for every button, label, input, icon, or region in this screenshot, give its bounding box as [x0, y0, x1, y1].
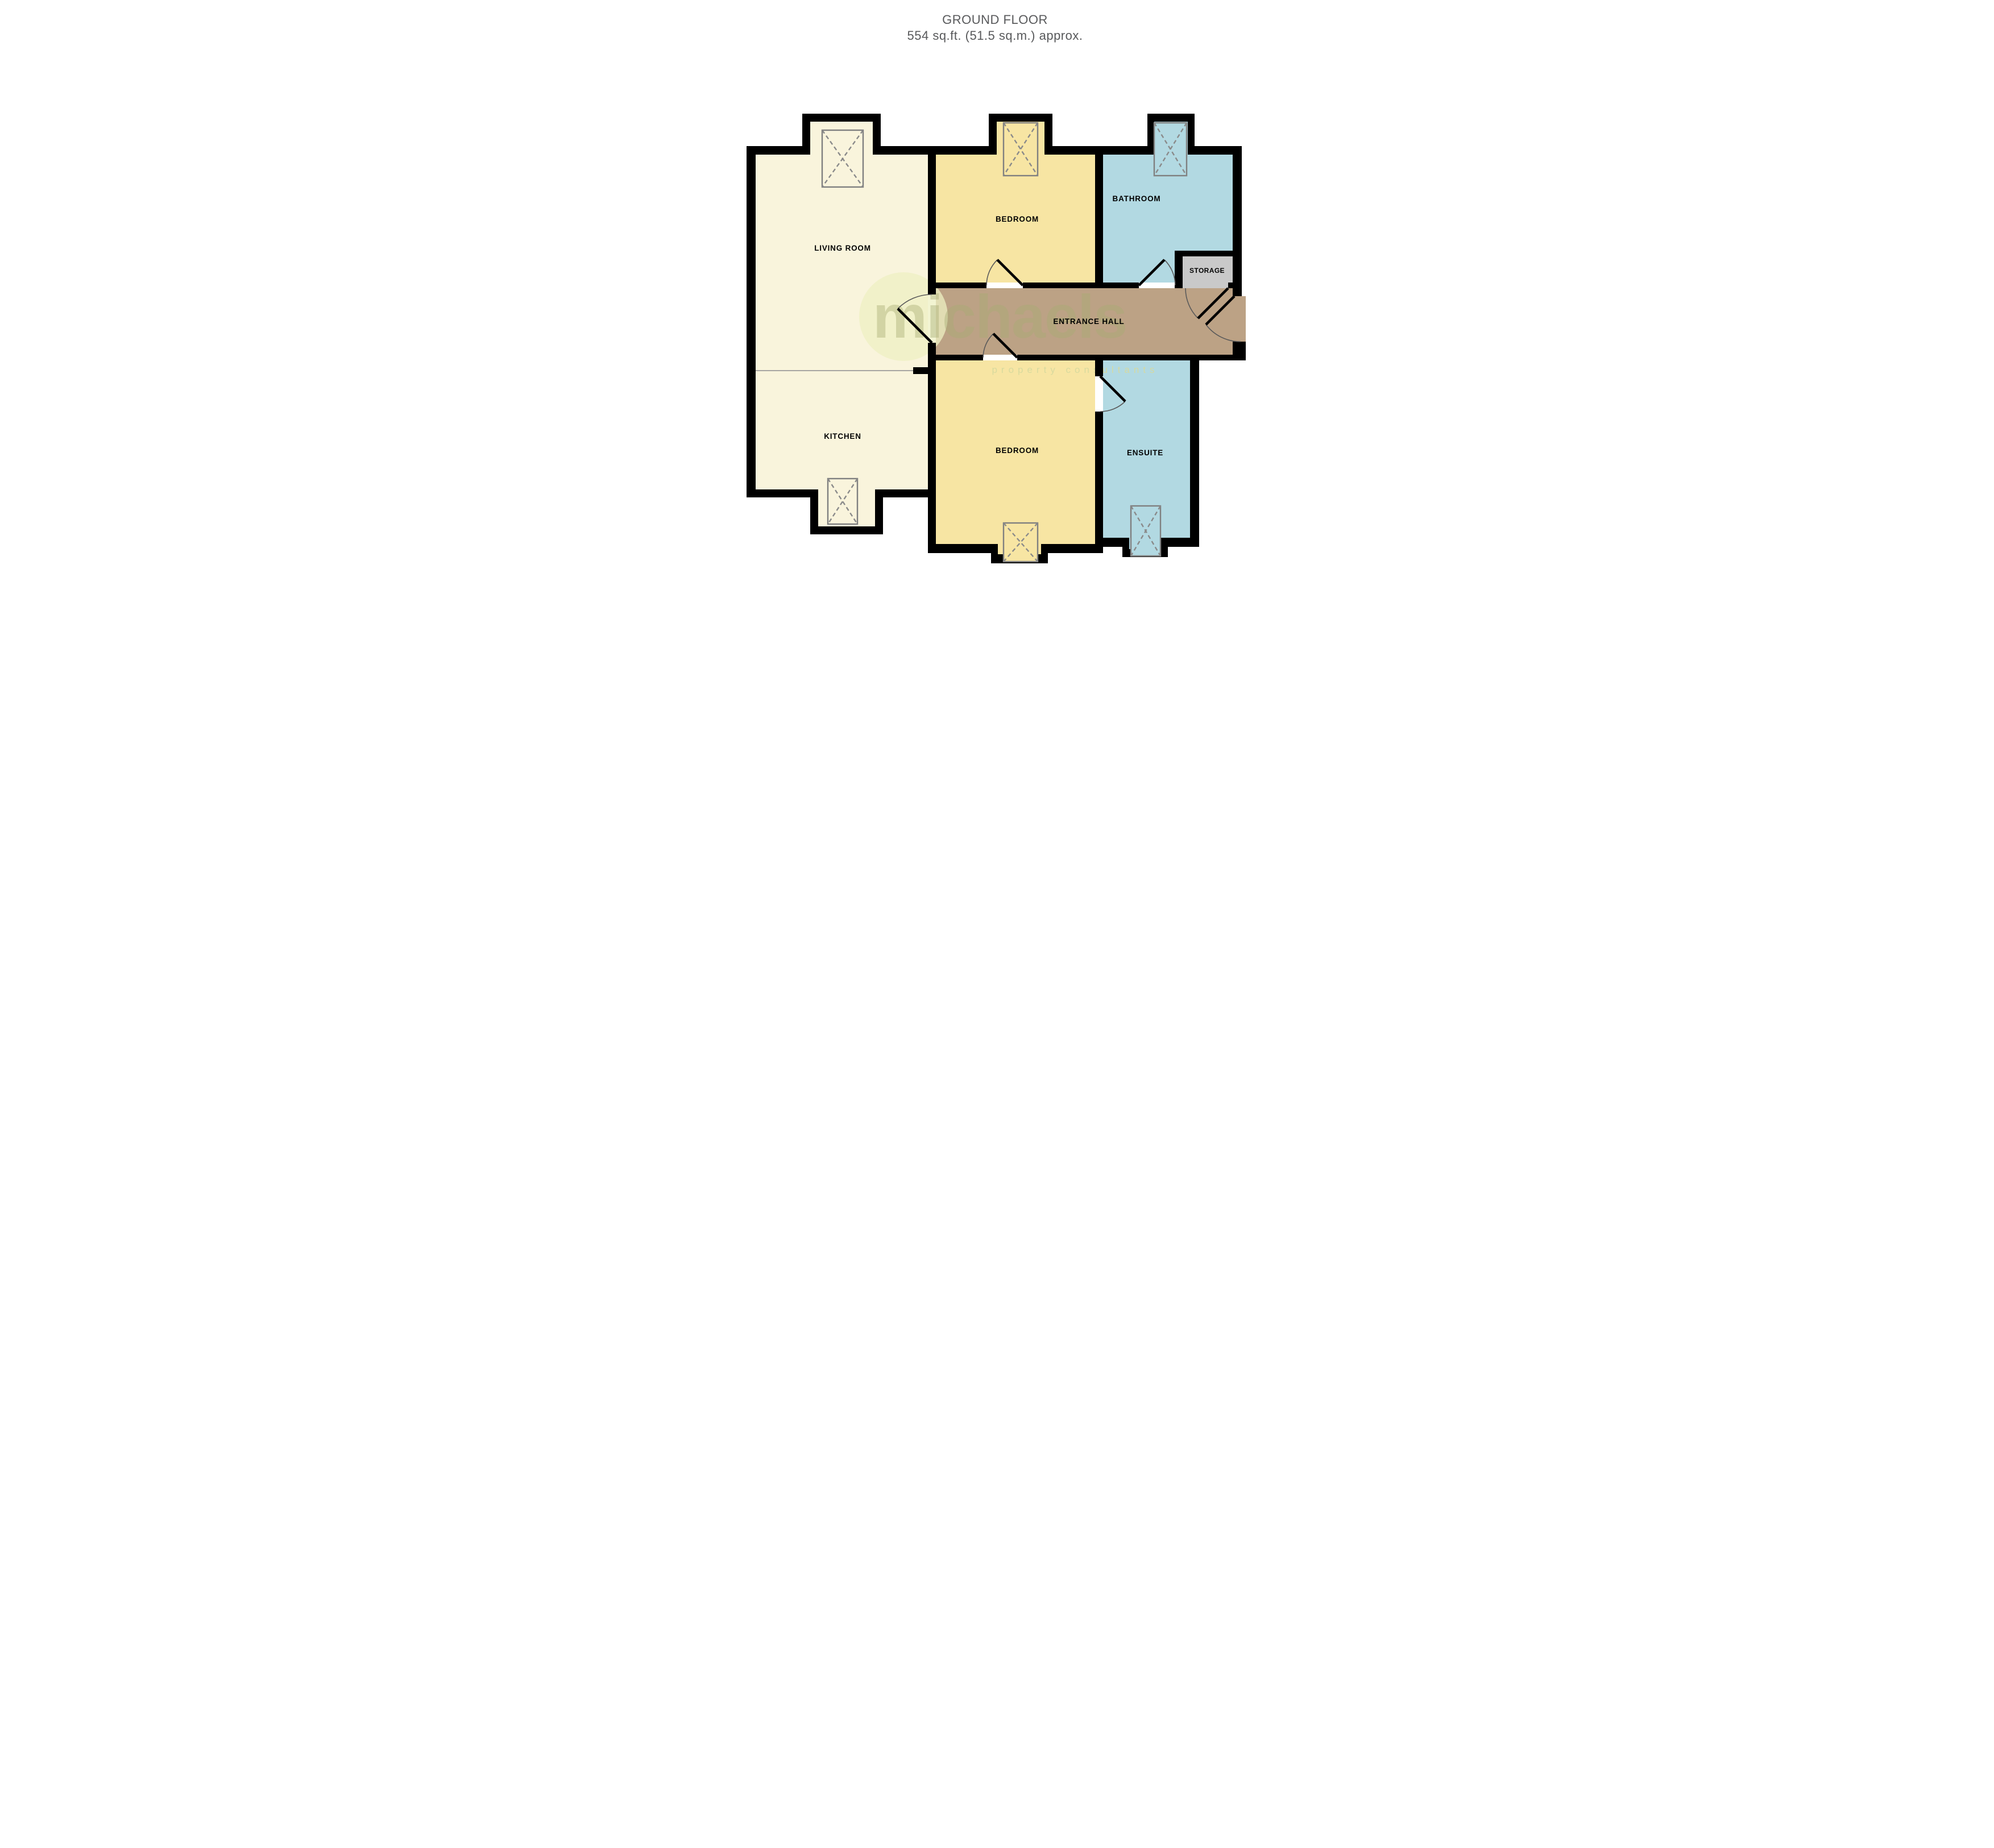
label-ensuite: ENSUITE [1127, 448, 1163, 457]
watermark-tagline: property consultants [992, 364, 1158, 375]
label-living-room: LIVING ROOM [814, 244, 871, 252]
label-bedroom-bottom: BEDROOM [996, 446, 1039, 455]
label-entrance-hall: ENTRANCE HALL [1053, 317, 1124, 326]
label-bathroom: BATHROOM [1113, 194, 1161, 203]
label-storage: STORAGE [1189, 267, 1225, 275]
bathroom-window [1154, 123, 1187, 176]
ensuite-window [1131, 506, 1160, 556]
living-room-window [822, 130, 863, 187]
title-line2: 554 sq.ft. (51.5 sq.m.) approx. [907, 28, 1083, 43]
label-kitchen: KITCHEN [824, 432, 861, 441]
title-line1: GROUND FLOOR [942, 13, 1048, 27]
bedroom-top-window [1004, 123, 1038, 176]
floor-plan-page: GROUND FLOOR 554 sq.ft. (51.5 sq.m.) app… [665, 0, 1329, 616]
floor-plan: GROUND FLOOR 554 sq.ft. (51.5 sq.m.) app… [665, 0, 1329, 616]
bedroom-bottom-window [1004, 523, 1038, 562]
kitchen-window [828, 479, 857, 524]
label-bedroom-top: BEDROOM [996, 215, 1039, 223]
